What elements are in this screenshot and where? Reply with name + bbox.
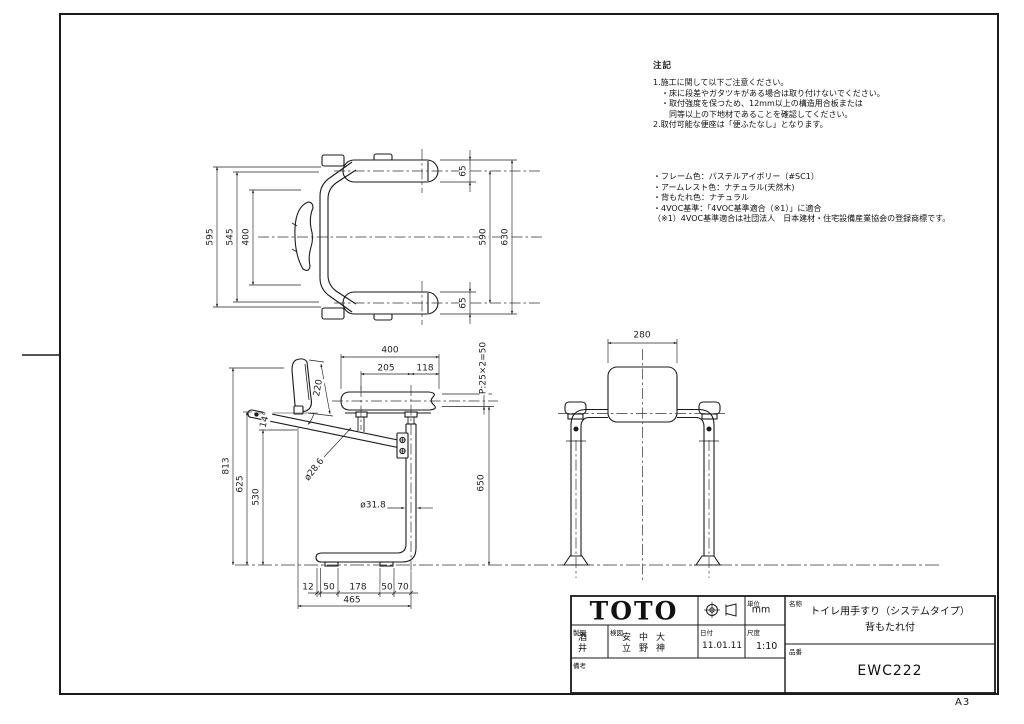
date-value: 11.01.11 [702,641,742,651]
checker-name: 大神 [654,632,663,654]
product-name-label: 名称 [789,598,802,608]
note-line: 1.施工に関して以下ご注意ください。 [653,78,885,89]
product-name-line2: 背もたれ付 [865,619,915,634]
note-line: ・床に段差やガタツキがある場合は取り付けないでください。 [653,89,885,100]
front-view [558,339,727,580]
note-line: 同等以上の下地材であることを確認してください。 [653,110,885,121]
checker-name: 中野 [637,632,646,654]
plan-view [213,149,543,325]
note-line: 2.取付可能な便座は「便ふたなし」となります。 [653,120,885,131]
part-number-value: EWC222 [857,663,922,679]
checked-by-names: 安立中野大神 [620,632,671,658]
sheet-size-label: A3 [955,697,970,708]
scale-value: 1:10 [756,641,777,652]
toto-logo: TOTO [590,597,679,626]
part-number-label: 品番 [789,646,802,656]
installation-notes: 1.施工に関して以下ご注意ください。 ・床に段差やガタツキがある場合は取り付けな… [653,78,885,131]
date-label: 日付 [700,627,713,637]
notes-title: 注記 [653,59,672,71]
drawn-by-name: 酒井 [576,632,593,658]
checker-name: 安立 [620,632,629,654]
note-line: ・4VOC基準：「4VOC基準適合（※1）」に適合 [653,204,950,215]
note-line: ・取付強度を保つため、12mm以上の構造用合板または [653,99,885,110]
note-line: ・背もたれ色：ナチュラル [653,193,950,204]
drawing-sheet: 注記 1.施工に関して以下ご注意ください。 ・床に段差やガタツキがある場合は取り… [0,0,1024,724]
scale-label: 尺度 [747,627,760,637]
unit-value: mm [752,605,771,616]
product-name-line1: トイレ用手すり（システムタイプ） [810,603,970,618]
note-line: ・フレーム色：パステルアイボリー（#SC1） [653,172,950,183]
note-line: （※1）4VOC基準適合は社団法人 日本建材・住宅設備産業協会の登録商標です。 [653,214,950,225]
remarks-label: 備考 [573,660,586,670]
note-line: ・アームレスト色：ナチュラル(天然木) [653,183,950,194]
projection-symbol-icon [704,602,736,618]
side-view [229,354,498,609]
color-spec-notes: ・フレーム色：パステルアイボリー（#SC1）・アームレスト色：ナチュラル(天然木… [653,172,950,225]
